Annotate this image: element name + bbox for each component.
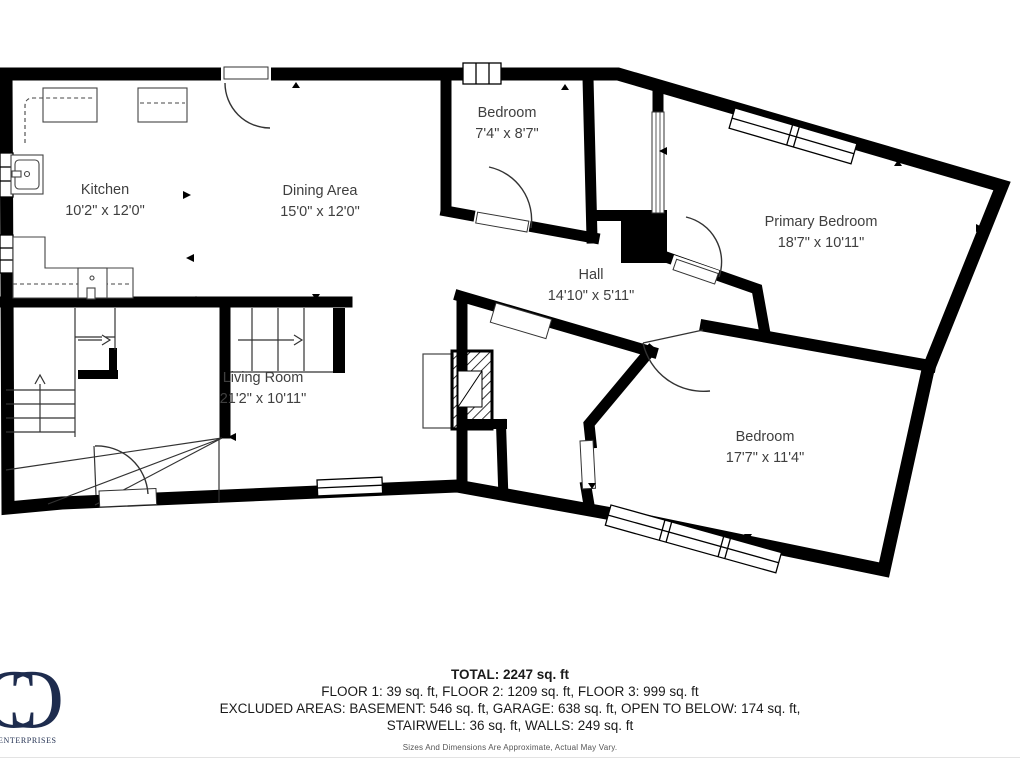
room-dims-bedroom-bottom: 17'7" x 11'4" xyxy=(726,450,804,466)
living-room-window xyxy=(317,477,383,496)
page-bottom-edge xyxy=(0,757,1020,758)
counter xyxy=(43,88,97,122)
stove xyxy=(78,268,107,299)
stair-stub-wall xyxy=(78,370,118,379)
floorplan-page: Kitchen 10'2" x 12'0" Dining Area 15'0" … xyxy=(0,0,1020,768)
chase-block xyxy=(596,210,667,263)
room-dims-bedroom-top: 7'4" x 8'7" xyxy=(475,126,538,142)
closet-opening xyxy=(652,112,664,213)
disclaimer-text: Sizes And Dimensions Are Approximate, Ac… xyxy=(0,743,1020,752)
doors xyxy=(94,67,722,507)
refrigerator xyxy=(138,88,187,122)
hearth xyxy=(423,354,453,428)
excluded-areas-line-1: EXCLUDED AREAS: BASEMENT: 546 sq. ft, GA… xyxy=(0,700,1020,717)
entry-opening xyxy=(580,440,595,489)
room-dims-hall: 14'10" x 5'11" xyxy=(548,288,635,304)
excluded-areas-line-2: STAIRWELL: 36 sq. ft, WALLS: 249 sq. ft xyxy=(0,717,1020,734)
room-label-bedroom-bottom: Bedroom xyxy=(736,429,795,445)
room-label-hall: Hall xyxy=(579,267,604,283)
kitchen-window xyxy=(0,235,13,273)
floorplan-drawing: Kitchen 10'2" x 12'0" Dining Area 15'0" … xyxy=(0,0,1020,768)
area-summary: TOTAL: 2247 sq. ft FLOOR 1: 39 sq. ft, F… xyxy=(0,666,1020,752)
dining-door xyxy=(224,67,270,128)
room-dims-kitchen: 10'2" x 12'0" xyxy=(65,203,145,219)
room-dims-living-room: 21'2" x 10'11" xyxy=(220,391,307,407)
room-label-living-room: Living Room xyxy=(223,370,304,386)
room-label-dining: Dining Area xyxy=(283,183,359,199)
company-logo: CC ENTERPRISES xyxy=(0,660,92,745)
logo-letter-c-mirrored: C xyxy=(8,660,64,740)
bedroom-door xyxy=(476,167,532,232)
total-area-line: TOTAL: 2247 sq. ft xyxy=(0,666,1020,683)
bedroom2-door xyxy=(643,330,710,391)
room-label-kitchen: Kitchen xyxy=(81,182,129,198)
kitchen-sink xyxy=(11,155,43,194)
lower-counter xyxy=(13,237,133,298)
room-label-primary-bedroom: Primary Bedroom xyxy=(765,214,878,230)
fireplace xyxy=(423,351,492,429)
room-label-bedroom-top: Bedroom xyxy=(478,105,537,121)
top-wall-window xyxy=(463,63,501,84)
stair-stub-wall xyxy=(333,308,345,373)
floors-line: FLOOR 1: 39 sq. ft, FLOOR 2: 1209 sq. ft… xyxy=(0,683,1020,700)
logo-monogram: CC xyxy=(0,660,92,744)
room-dims-primary-bedroom: 18'7" x 10'11" xyxy=(778,235,865,251)
room-dims-dining: 15'0" x 12'0" xyxy=(280,204,360,220)
